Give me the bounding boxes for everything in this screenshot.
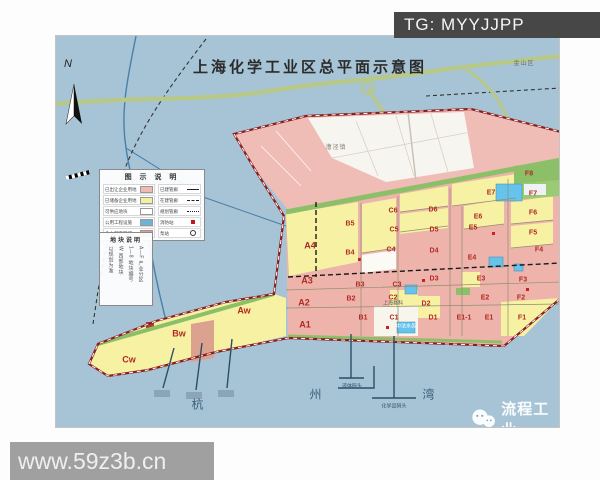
legend-item: 已建管廊 [158, 184, 201, 194]
brand-watermark: 流程工业 [471, 398, 559, 428]
industrial-park-map: 上海化学工业区总平面示意图 N 图 示 说 明 已出让企业用地 已储备企业用地 … [55, 35, 560, 428]
legend-item: 已出让企业用地 [103, 184, 155, 194]
website-watermark-bar: www.59z3b.cn [10, 442, 214, 480]
plot-note-line: 以规划为准 [108, 246, 115, 302]
legend-item: 可供应地块 [103, 206, 155, 216]
plot-note-line: 1—8 地块编号 [128, 246, 135, 302]
symbol-pump-station [186, 230, 199, 236]
map-title: 上海化学工业区总平面示意图 [182, 56, 438, 77]
legend-item: 在建管廊 [158, 195, 201, 205]
symbol-fire-station [186, 219, 199, 225]
swatch-yellow [140, 197, 153, 204]
plot-note-line: W 西部地块 [118, 246, 125, 302]
website-watermark-text: www.59z3b.cn [18, 448, 166, 475]
plot-note-title: 地块说明 [102, 235, 150, 244]
legend-item: 消防站 [158, 217, 201, 227]
legend-right-column: 已建管廊 在建管廊 规划管廊 消防站 泵站 [158, 184, 201, 238]
legend-item: 公用工程设施 [103, 217, 155, 227]
legend-title: 图 示 说 明 [103, 172, 201, 182]
symbol-built-line [186, 186, 199, 192]
swatch-pink [140, 186, 153, 193]
swatch-blue [140, 219, 153, 226]
wechat-icon [471, 408, 496, 428]
plot-note-line: A—F 产业分区 [138, 246, 145, 302]
railway-marker [66, 172, 90, 178]
telegram-watermark-text: TG: MYYJJPP [404, 15, 525, 35]
symbol-dot-line [186, 208, 199, 214]
symbol-dash-line [186, 197, 199, 203]
legend-item: 规划管廊 [158, 206, 201, 216]
legend-item: 泵站 [158, 228, 201, 238]
legend-left-column: 已出让企业用地 已储备企业用地 可供应地块 公用工程设施 金山配套区域 [103, 184, 155, 238]
brand-text: 流程工业 [501, 398, 559, 428]
screenshot-page: 上海化学工业区总平面示意图 N 图 示 说 明 已出让企业用地 已储备企业用地 … [0, 0, 600, 480]
legend-box: 图 示 说 明 已出让企业用地 已储备企业用地 可供应地块 公用工程设施 金山配… [99, 169, 205, 241]
compass-north-label: N [64, 58, 72, 70]
telegram-watermark-bar: TG: MYYJJPP [394, 12, 600, 38]
pier-label-marks [154, 390, 234, 399]
swatch-white [140, 208, 153, 215]
legend-item: 已储备企业用地 [103, 195, 155, 205]
plot-note-box: 地块说明 A—F 产业分区 1—8 地块编号 W 西部地块 以规划为准 [99, 232, 153, 306]
